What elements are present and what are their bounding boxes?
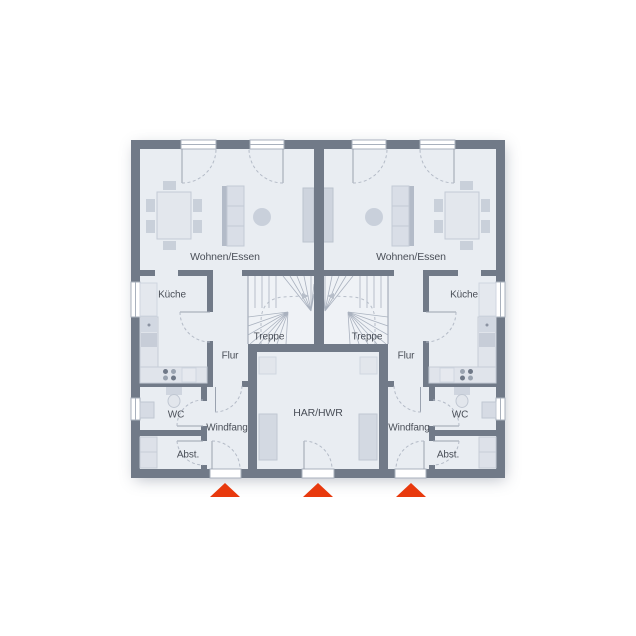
room-label-living-left: Wohnen/Essen (190, 251, 260, 263)
room-label-wc-left: WC (168, 410, 184, 421)
utility-entrance-door (302, 441, 334, 478)
room-label-storage-left: Abst. (177, 450, 199, 461)
room-label-vestibule-left: Windfang (206, 423, 247, 434)
room-label-stairs-left: Treppe (254, 332, 285, 343)
party-wall (314, 140, 324, 352)
floor-plan: Wohnen/Essen Wohnen/Essen Küche Küche Tr… (0, 0, 636, 636)
room-label-storage-right: Abst. (437, 450, 459, 461)
entrance-marker-center (303, 483, 333, 497)
room-label-kitchen-left: Küche (158, 290, 186, 301)
room-label-living-right: Wohnen/Essen (376, 251, 446, 263)
room-label-kitchen-right: Küche (450, 290, 478, 301)
room-label-stairs-right: Treppe (352, 332, 383, 343)
room-label-vestibule-right: Windfang (388, 423, 429, 434)
room-label-wc-right: WC (452, 410, 468, 421)
room-label-hall-right: Flur (398, 351, 415, 362)
room-label-utility: HAR/HWR (293, 407, 342, 419)
room-label-hall-left: Flur (222, 351, 239, 362)
